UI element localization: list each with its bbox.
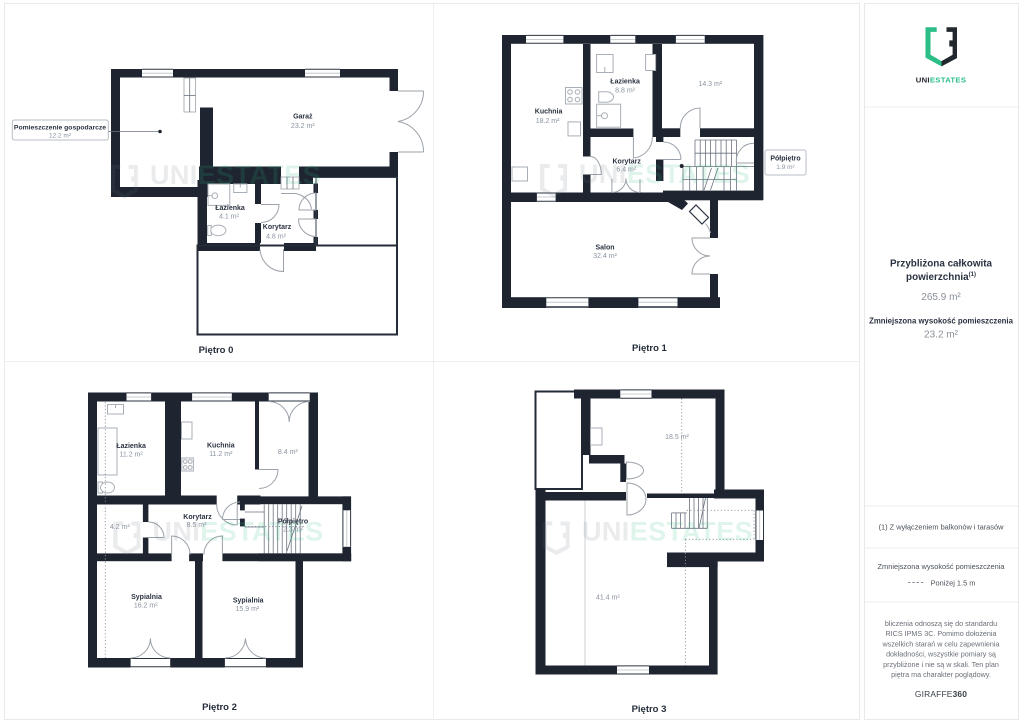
svg-text:(1) Z wyłączeniem balkonów i t: (1) Z wyłączeniem balkonów i tarasów xyxy=(879,523,1005,532)
svg-text:GIRAFFE360: GIRAFFE360 xyxy=(915,689,967,699)
svg-text:Piętro 0: Piętro 0 xyxy=(199,345,234,356)
svg-text:Piętro 2: Piętro 2 xyxy=(202,702,237,713)
svg-text:32.4 m²: 32.4 m² xyxy=(593,253,617,260)
svg-text:UNIESTATES: UNIESTATES xyxy=(916,76,967,85)
svg-text:Poniżej 1.5 m: Poniżej 1.5 m xyxy=(931,579,976,588)
svg-text:11.2 m²: 11.2 m² xyxy=(119,452,143,459)
svg-text:41.4 m²: 41.4 m² xyxy=(596,595,620,602)
svg-text:Salon: Salon xyxy=(595,245,614,252)
svg-text:Sypialnia: Sypialnia xyxy=(233,598,264,605)
svg-text:Piętro 1: Piętro 1 xyxy=(632,343,668,354)
svg-text:4.2 m²: 4.2 m² xyxy=(110,524,131,531)
svg-text:2.3 m²: 2.3 m² xyxy=(283,527,304,534)
svg-text:Zmniejszona wysokość pomieszcz: Zmniejszona wysokość pomieszczenia xyxy=(878,562,1006,571)
svg-text:Półpiętro: Półpiętro xyxy=(770,156,800,163)
svg-text:powierzchnia(1): powierzchnia(1) xyxy=(906,272,976,283)
svg-text:8.5 m²: 8.5 m² xyxy=(187,522,208,529)
svg-text:4.1 m²: 4.1 m² xyxy=(219,214,240,221)
svg-text:23.2 m²: 23.2 m² xyxy=(924,330,959,341)
svg-text:Korytarz: Korytarz xyxy=(263,224,292,231)
svg-text:Kuchnia: Kuchnia xyxy=(535,109,563,116)
svg-text:przybliżone i nie są w skali.: przybliżone i nie są w skali. Ten plan xyxy=(883,660,999,669)
svg-text:Korytarz: Korytarz xyxy=(612,159,641,166)
svg-text:Łazienka: Łazienka xyxy=(215,205,245,212)
svg-text:UNIESTATES: UNIESTATES xyxy=(150,160,321,190)
svg-text:8.4 m²: 8.4 m² xyxy=(278,449,299,456)
svg-text:15.9 m²: 15.9 m² xyxy=(236,606,260,613)
svg-text:12.2 m²: 12.2 m² xyxy=(49,133,72,140)
svg-text:11.2 m²: 11.2 m² xyxy=(209,451,233,458)
svg-text:dokładności, wszystkie pomiary: dokładności, wszystkie pomiary są xyxy=(886,650,996,659)
svg-text:Garaż: Garaż xyxy=(293,114,313,121)
svg-text:18.2 m²: 18.2 m² xyxy=(536,118,560,125)
svg-text:Piętro 3: Piętro 3 xyxy=(632,704,667,715)
svg-text:23.2 m²: 23.2 m² xyxy=(291,123,315,130)
svg-text:Łazienka: Łazienka xyxy=(610,79,640,86)
svg-text:UNIESTATES: UNIESTATES xyxy=(582,517,753,547)
svg-text:wszelkich starań w celu zapewn: wszelkich starań w celu zapewnienia xyxy=(881,639,999,648)
svg-text:RICS IPMS 3C. Pomimo dołożenia: RICS IPMS 3C. Pomimo dołożenia xyxy=(885,629,996,638)
svg-text:Korytarz: Korytarz xyxy=(183,514,212,521)
svg-text:1.9 m²: 1.9 m² xyxy=(776,164,795,171)
svg-text:UNIESTATES: UNIESTATES xyxy=(579,159,750,189)
svg-text:Zmniejszona wysokość pomieszcz: Zmniejszona wysokość pomieszczenia xyxy=(869,317,1014,326)
svg-text:Pomieszczenie gospodarcze: Pomieszczenie gospodarcze xyxy=(14,125,106,132)
svg-text:Przybliżona całkowita: Przybliżona całkowita xyxy=(890,259,993,270)
svg-text:16.2 m²: 16.2 m² xyxy=(134,603,158,610)
svg-text:bliczenia odnoszą się do stand: bliczenia odnoszą się do standardu xyxy=(885,619,997,628)
svg-text:Półpiętro: Półpiętro xyxy=(278,519,308,526)
svg-text:Kuchnia: Kuchnia xyxy=(207,443,235,450)
svg-text:4.8 m²: 4.8 m² xyxy=(266,234,287,241)
svg-text:6.4 m²: 6.4 m² xyxy=(616,167,637,174)
svg-text:14.3 m²: 14.3 m² xyxy=(698,81,722,88)
svg-text:18.5 m²: 18.5 m² xyxy=(665,434,689,441)
svg-text:Sypialnia: Sypialnia xyxy=(131,594,162,601)
svg-text:piętra ma charakter poglądowy.: piętra ma charakter poglądowy. xyxy=(891,670,991,679)
svg-text:8.8 m²: 8.8 m² xyxy=(615,88,636,95)
svg-text:Łazienka: Łazienka xyxy=(116,443,146,450)
svg-text:265.9 m²: 265.9 m² xyxy=(921,292,961,303)
